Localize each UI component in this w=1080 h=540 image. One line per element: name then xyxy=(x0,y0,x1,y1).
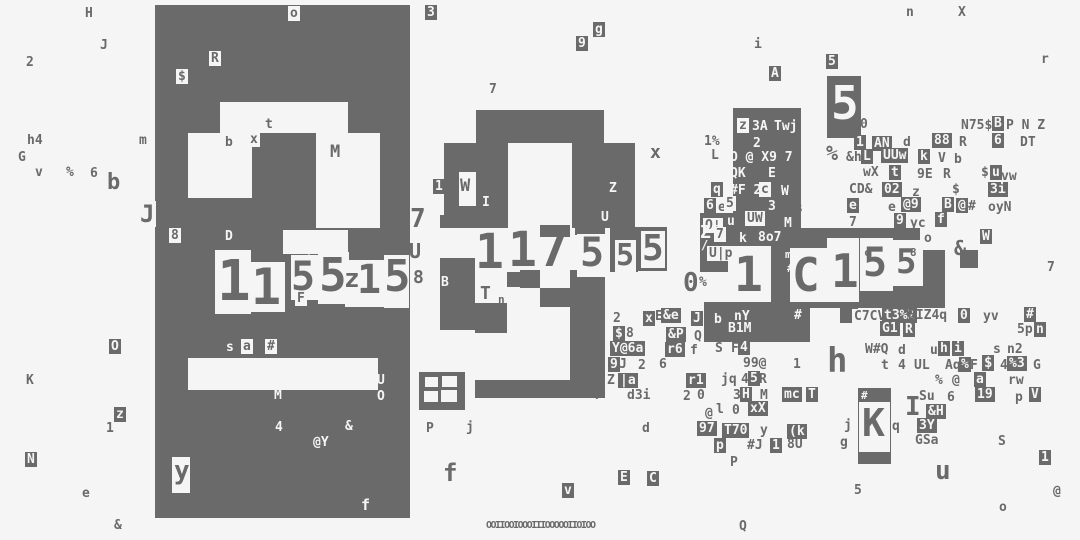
noise-glyph: N xyxy=(25,452,37,467)
noise-glyph: n xyxy=(1034,322,1046,337)
noise-block-dark xyxy=(440,215,476,228)
noise-glyph: h4 xyxy=(27,134,43,147)
noise-glyph: 9E xyxy=(917,168,933,181)
noise-glyph: v xyxy=(562,483,574,498)
noise-glyph: Su xyxy=(919,390,935,403)
noise-block-dark xyxy=(476,110,604,143)
noise-glyph: y xyxy=(174,458,190,484)
noise-glyph: I xyxy=(482,196,490,209)
noise-glyph: 7 xyxy=(1047,261,1055,274)
noise-glyph: W xyxy=(980,229,992,244)
noise-glyph: 3 xyxy=(768,200,776,213)
noise-glyph: E xyxy=(768,167,776,180)
noise-glyph: mc xyxy=(782,387,802,402)
noise-glyph: z xyxy=(737,118,749,133)
noise-glyph: 5 xyxy=(724,196,736,211)
noise-glyph: K xyxy=(862,404,885,442)
noise-glyph: E xyxy=(618,470,630,485)
noise-glyph: 1 xyxy=(475,228,504,276)
noise-glyph: T xyxy=(806,387,818,402)
noise-glyph: G1 xyxy=(880,321,900,336)
noise-glyph: f xyxy=(935,212,947,227)
noise-glyph: G xyxy=(18,151,26,164)
noise-glyph: h xyxy=(827,344,847,378)
noise-glyph: R xyxy=(759,373,767,386)
noise-glyph: r xyxy=(1041,53,1049,66)
noise-glyph: D xyxy=(225,230,233,243)
noise-glyph: wX xyxy=(863,166,879,179)
noise-glyph: u xyxy=(935,458,951,484)
noise-glyph: f xyxy=(361,498,370,513)
noise-glyph: rw xyxy=(1008,374,1024,387)
noise-block-light xyxy=(188,133,252,198)
noise-glyph: 6 xyxy=(659,358,667,371)
noise-glyph: Twj xyxy=(774,120,797,133)
noise-glyph: Y@6a xyxy=(610,341,645,356)
noise-glyph: oyN xyxy=(988,201,1011,214)
noise-glyph: M xyxy=(274,389,282,402)
noise-glyph: @9 xyxy=(901,197,921,212)
noise-glyph: @Y xyxy=(313,436,329,449)
noise-glyph: $ xyxy=(982,355,994,371)
noise-glyph: 5 xyxy=(384,255,411,299)
noise-glyph: u xyxy=(727,215,735,228)
noise-glyph: 1 xyxy=(106,422,114,435)
noise-glyph: j xyxy=(844,419,852,432)
noise-glyph: e xyxy=(847,198,859,213)
noise-glyph: 7 xyxy=(410,206,426,232)
noise-glyph: 9 xyxy=(894,213,906,228)
noise-glyph: o xyxy=(924,232,932,245)
noise-glyph: y xyxy=(760,424,768,437)
noise-glyph: 19 xyxy=(975,387,995,402)
noise-glyph: J xyxy=(100,39,108,52)
noise-glyph: o xyxy=(999,501,1007,514)
noise-glyph: 0 xyxy=(958,308,970,323)
noise-glyph: p xyxy=(714,438,726,453)
noise-glyph: a xyxy=(241,339,253,354)
noise-glyph: 1% xyxy=(704,135,720,148)
noise-glyph: k xyxy=(918,149,930,164)
noise-glyph: M xyxy=(330,144,340,161)
noise-glyph: % xyxy=(66,166,74,179)
noise-glyph: R xyxy=(943,168,951,181)
noise-glyph: 8 xyxy=(413,269,424,287)
noise-block-light xyxy=(425,377,438,387)
noise-glyph: 02 xyxy=(882,182,902,197)
noise-glyph: # xyxy=(861,390,868,401)
noise-glyph: 5 xyxy=(854,484,862,497)
noise-glyph: OOIIOOIOOOIIIOOOOOIIOIOO xyxy=(486,521,595,531)
noise-glyph: d3i xyxy=(627,389,650,402)
noise-glyph: O xyxy=(109,339,121,354)
noise-glyph: n xyxy=(906,6,914,19)
noise-glyph: F xyxy=(970,359,978,372)
noise-glyph: 1 xyxy=(357,260,381,300)
noise-glyph: 5 xyxy=(896,245,916,279)
noise-glyph: BIZ4q xyxy=(908,309,947,322)
noise-glyph: s xyxy=(226,341,234,354)
noise-glyph: $ xyxy=(952,183,960,196)
noise-glyph: i xyxy=(754,38,762,51)
noise-glyph: 4 xyxy=(275,421,283,434)
noise-glyph: C xyxy=(647,471,659,486)
noise-glyph: M xyxy=(784,217,792,230)
noise-glyph: #J xyxy=(747,439,763,452)
noise-glyph: 8 xyxy=(169,228,181,243)
noise-glyph: 3A xyxy=(752,120,768,133)
noise-glyph: n xyxy=(498,294,505,305)
noise-glyph: 7 xyxy=(714,227,726,242)
noise-glyph: d xyxy=(898,344,906,357)
noise-block-dark xyxy=(440,258,475,330)
noise-glyph: 7 xyxy=(594,389,602,402)
noise-glyph: t xyxy=(889,165,901,180)
noise-glyph: 2 xyxy=(638,359,646,372)
noise-glyph: R xyxy=(209,51,221,66)
noise-captcha-canvas: HJ2h4Gv%6bmKOz1Ne&oR$tbxMJ8D$Fsa#M4&@YyU… xyxy=(0,0,1080,540)
noise-glyph: 1 xyxy=(854,135,866,150)
noise-glyph: 97 xyxy=(697,421,717,436)
noise-glyph: 99@ xyxy=(743,357,766,370)
noise-glyph: 1 xyxy=(251,262,281,312)
noise-block-dark xyxy=(475,380,593,398)
noise-glyph: % xyxy=(935,374,943,387)
noise-glyph: n2 xyxy=(1007,343,1023,356)
noise-glyph: 1 xyxy=(793,358,801,371)
noise-glyph: T70 xyxy=(722,423,749,438)
noise-glyph: V xyxy=(938,152,946,165)
noise-glyph: f xyxy=(690,344,698,357)
noise-glyph: yv xyxy=(983,310,999,323)
noise-glyph: 5 xyxy=(616,241,634,271)
noise-glyph: i xyxy=(952,341,964,356)
noise-glyph: b xyxy=(954,153,962,166)
noise-glyph: J xyxy=(619,358,627,371)
noise-glyph: 6 xyxy=(992,133,1004,148)
noise-glyph: c xyxy=(759,182,771,197)
noise-glyph: e xyxy=(82,487,90,500)
noise-glyph: 8o7 xyxy=(758,231,781,244)
noise-glyph: m xyxy=(139,134,147,147)
noise-glyph: 8U xyxy=(787,438,803,451)
noise-glyph: U|p xyxy=(707,246,734,261)
noise-glyph: k xyxy=(739,232,747,245)
noise-glyph: UUw xyxy=(881,148,908,163)
noise-glyph: N75$ xyxy=(961,119,992,132)
noise-glyph: X xyxy=(958,6,966,19)
noise-glyph: 3Y xyxy=(917,418,937,433)
noise-glyph: a xyxy=(974,372,986,387)
noise-glyph: @ xyxy=(1053,485,1061,498)
noise-glyph: % xyxy=(826,143,838,163)
noise-glyph: DT xyxy=(1020,136,1036,149)
noise-block-dark xyxy=(570,270,605,398)
noise-glyph: $ xyxy=(613,326,625,341)
noise-glyph: xX xyxy=(748,401,768,416)
noise-glyph: L xyxy=(711,149,719,162)
noise-glyph: L xyxy=(861,149,873,164)
noise-glyph: z xyxy=(114,407,126,422)
noise-glyph: yc xyxy=(910,217,926,230)
noise-glyph: 4 xyxy=(738,340,750,355)
noise-glyph: Q xyxy=(739,520,747,533)
noise-glyph: x xyxy=(248,132,260,147)
noise-glyph: W xyxy=(781,185,789,198)
noise-glyph: H xyxy=(740,387,752,402)
noise-glyph: S xyxy=(998,435,1006,448)
noise-glyph: C xyxy=(792,252,820,298)
noise-glyph: @ xyxy=(952,374,960,387)
noise-glyph: GSa xyxy=(915,434,938,447)
noise-glyph: I xyxy=(905,394,921,420)
noise-glyph: 9 xyxy=(576,36,588,51)
noise-block-light xyxy=(442,376,457,387)
noise-glyph: QK xyxy=(730,167,746,180)
noise-glyph: g xyxy=(840,436,848,449)
noise-glyph: q xyxy=(711,182,723,197)
noise-glyph: 5 xyxy=(826,54,838,69)
noise-glyph: 3 xyxy=(425,5,437,20)
noise-glyph: B1M xyxy=(728,322,751,335)
noise-glyph: &h xyxy=(846,151,862,164)
noise-glyph: P xyxy=(426,422,434,435)
noise-glyph: jq xyxy=(721,373,737,386)
noise-glyph: K xyxy=(26,374,34,387)
noise-glyph: P xyxy=(730,456,738,469)
noise-glyph: g xyxy=(593,22,605,37)
noise-glyph: 0 xyxy=(732,404,740,417)
noise-glyph: U xyxy=(409,241,421,261)
noise-glyph: 7 xyxy=(489,83,497,96)
noise-glyph: & xyxy=(114,519,122,532)
noise-glyph: 1 xyxy=(1039,450,1051,465)
noise-glyph: 3i xyxy=(988,182,1008,197)
noise-glyph: A xyxy=(769,66,781,81)
noise-glyph: 2 xyxy=(613,312,621,325)
noise-glyph: 0 xyxy=(860,118,868,131)
noise-glyph: 1 xyxy=(217,254,251,310)
noise-glyph: J xyxy=(691,311,703,326)
noise-block-light xyxy=(316,133,380,228)
noise-glyph: Z xyxy=(700,224,711,242)
noise-glyph: j xyxy=(466,421,474,434)
noise-glyph: B xyxy=(441,276,449,289)
noise-glyph: c xyxy=(864,247,871,258)
noise-glyph: 1 xyxy=(734,251,763,299)
noise-glyph: m xyxy=(785,249,792,260)
noise-glyph: & xyxy=(345,420,353,433)
noise-glyph: T xyxy=(480,285,491,303)
noise-glyph: 5 xyxy=(642,231,664,267)
noise-glyph: CD& xyxy=(849,183,872,196)
noise-glyph: t xyxy=(881,359,889,372)
noise-glyph: 5 xyxy=(319,252,347,298)
noise-glyph: $ xyxy=(981,166,989,179)
noise-glyph: UL xyxy=(914,359,930,372)
noise-glyph: 2 xyxy=(26,56,34,69)
noise-glyph: 5 xyxy=(831,80,859,126)
noise-glyph: G xyxy=(1033,359,1041,372)
noise-glyph: $ xyxy=(176,69,188,84)
noise-glyph: x xyxy=(643,311,655,326)
noise-glyph: ŪW xyxy=(745,211,765,226)
noise-glyph: 1 xyxy=(831,248,859,294)
noise-glyph: 6 xyxy=(90,167,98,180)
noise-glyph: o xyxy=(288,6,300,21)
noise-glyph: q xyxy=(892,420,900,433)
noise-glyph: %3 xyxy=(1007,356,1027,371)
noise-glyph: 5 xyxy=(580,233,604,273)
noise-glyph: x xyxy=(650,144,661,162)
noise-glyph: 5p xyxy=(1017,323,1033,336)
noise-glyph: s xyxy=(795,202,803,215)
noise-block-light xyxy=(441,390,457,402)
noise-glyph: p xyxy=(1015,391,1023,404)
noise-glyph: 88 xyxy=(932,133,952,148)
noise-glyph: Z xyxy=(609,182,617,195)
noise-glyph: 0 xyxy=(697,389,705,402)
noise-glyph: 6 xyxy=(947,391,955,404)
noise-glyph: O @ X9 7 xyxy=(730,151,793,164)
noise-glyph: J xyxy=(138,201,156,227)
noise-glyph: Z xyxy=(607,374,615,387)
noise-glyph: & xyxy=(954,238,966,258)
noise-block-light xyxy=(424,391,438,402)
noise-glyph: P N Z xyxy=(1006,119,1045,132)
noise-block-light xyxy=(220,102,348,133)
noise-glyph: &H xyxy=(926,404,946,419)
noise-glyph: # xyxy=(265,339,277,354)
noise-glyph: 7 xyxy=(539,226,568,274)
noise-glyph: # xyxy=(787,263,794,274)
noise-glyph: U xyxy=(377,374,385,387)
noise-glyph: # xyxy=(794,309,802,322)
noise-glyph: t xyxy=(265,118,273,131)
noise-glyph: n xyxy=(477,304,484,315)
noise-glyph: 6 xyxy=(704,198,716,213)
noise-glyph: W#Q xyxy=(865,343,888,356)
noise-glyph: 2 xyxy=(683,390,691,403)
noise-glyph: b xyxy=(714,313,722,326)
noise-glyph: &P xyxy=(666,327,686,342)
noise-block-dark xyxy=(540,288,571,307)
noise-glyph: R xyxy=(903,322,915,337)
noise-glyph: r1 xyxy=(686,373,706,388)
noise-glyph: R xyxy=(959,136,967,149)
noise-glyph: Q xyxy=(694,330,702,343)
noise-glyph: r6 xyxy=(665,342,685,357)
noise-glyph: l xyxy=(716,403,724,416)
noise-glyph: 7 xyxy=(849,216,857,229)
noise-glyph: v xyxy=(35,166,43,179)
noise-glyph: # xyxy=(1024,307,1036,322)
noise-glyph: u xyxy=(930,344,938,357)
noise-glyph: S xyxy=(715,342,723,355)
noise-glyph: 1 xyxy=(770,438,782,453)
noise-block-light xyxy=(188,358,378,390)
noise-glyph: B xyxy=(942,197,954,212)
noise-glyph: &e xyxy=(661,308,681,323)
noise-glyph: @ xyxy=(956,198,968,213)
noise-glyph: O xyxy=(377,390,385,403)
noise-glyph: H xyxy=(85,7,93,20)
noise-glyph: f xyxy=(443,461,457,485)
noise-glyph: B xyxy=(992,116,1004,131)
noise-glyph: d xyxy=(642,422,650,435)
noise-glyph: V xyxy=(1029,387,1041,402)
noise-glyph: 5 xyxy=(291,257,315,297)
noise-glyph: 2 xyxy=(753,137,761,150)
noise-glyph: # xyxy=(968,200,976,213)
noise-glyph: b xyxy=(225,136,233,149)
noise-glyph: % xyxy=(697,275,709,290)
noise-glyph: 8 xyxy=(626,327,634,340)
noise-glyph: 4 xyxy=(898,359,906,372)
noise-glyph: |a xyxy=(618,373,638,388)
noise-glyph: @ xyxy=(705,407,713,420)
noise-glyph: 1 xyxy=(433,179,445,194)
noise-glyph: U xyxy=(601,211,609,224)
noise-glyph: 1 xyxy=(508,226,537,274)
noise-glyph: b xyxy=(107,172,120,194)
noise-glyph: W xyxy=(460,178,470,195)
noise-glyph: h xyxy=(938,341,950,356)
